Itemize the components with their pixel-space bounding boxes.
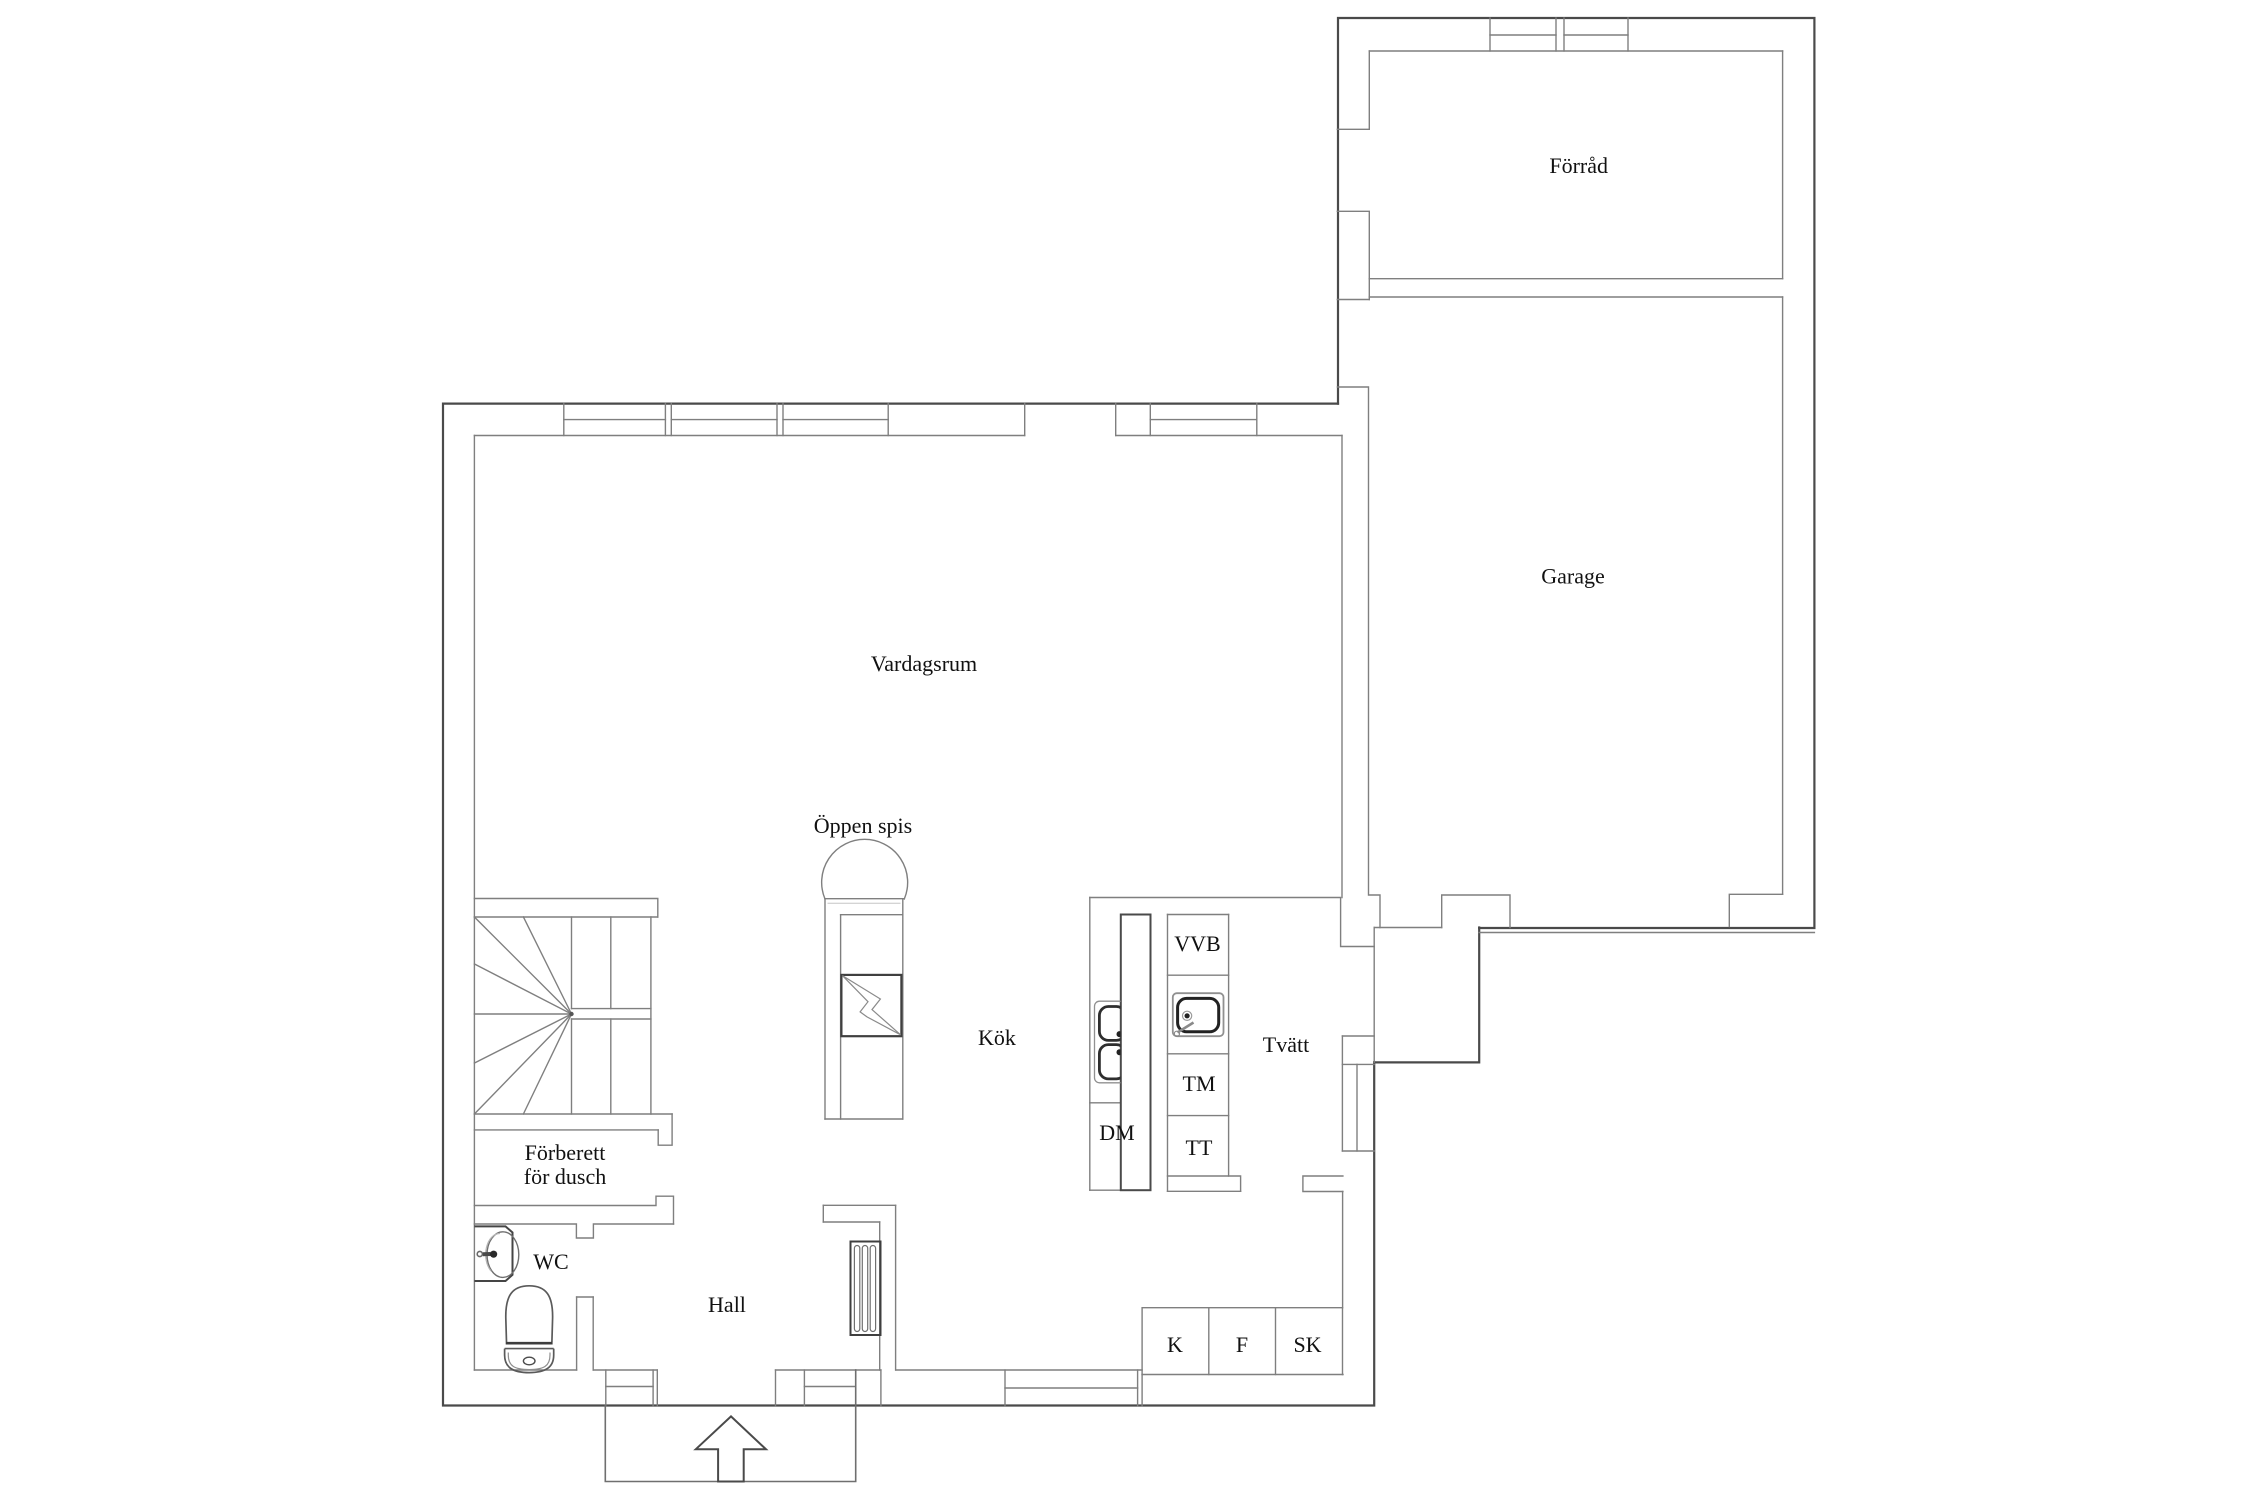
svg-text:Tvätt: Tvätt <box>1263 1032 1309 1057</box>
svg-text:WC: WC <box>533 1249 568 1274</box>
svg-text:Garage: Garage <box>1541 564 1605 589</box>
svg-text:VVB: VVB <box>1174 931 1220 956</box>
svg-text:F: F <box>1236 1332 1248 1357</box>
svg-text:TM: TM <box>1183 1071 1216 1096</box>
svg-text:Öppen spis: Öppen spis <box>814 813 912 838</box>
svg-text:Kök: Kök <box>978 1025 1016 1050</box>
svg-text:Vardagsrum: Vardagsrum <box>871 651 977 676</box>
svg-text:TT: TT <box>1186 1135 1213 1160</box>
svg-text:DM: DM <box>1099 1120 1134 1145</box>
svg-text:K: K <box>1167 1332 1183 1357</box>
svg-text:för dusch: för dusch <box>524 1164 606 1189</box>
svg-text:Förråd: Förråd <box>1549 153 1608 178</box>
svg-text:Förberett: Förberett <box>525 1140 606 1165</box>
svg-text:SK: SK <box>1293 1332 1321 1357</box>
svg-text:Hall: Hall <box>708 1292 746 1317</box>
